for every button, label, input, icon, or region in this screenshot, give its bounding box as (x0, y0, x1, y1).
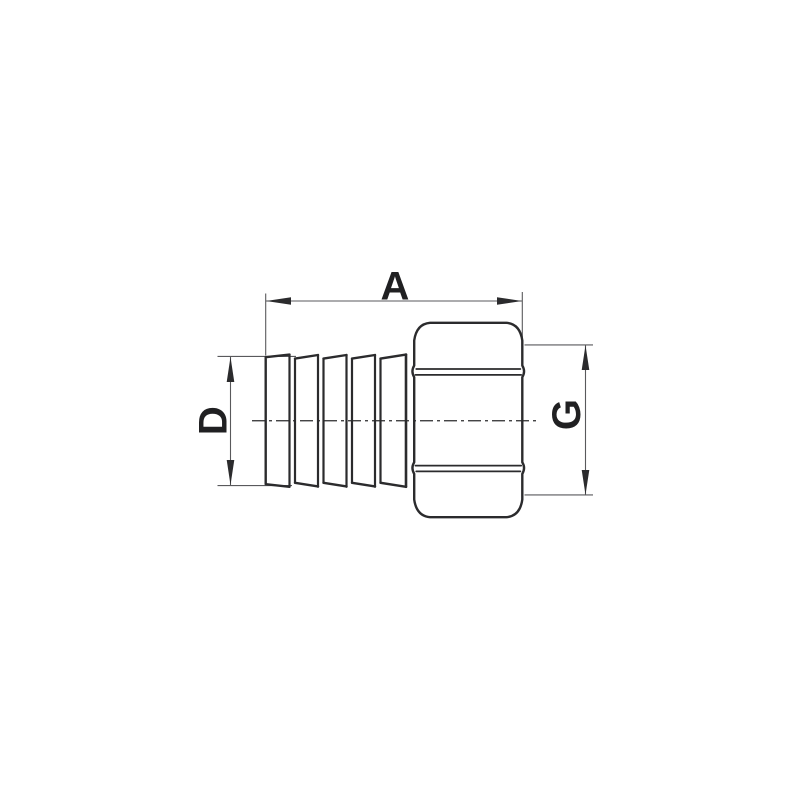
technical-drawing-canvas: A D G (0, 0, 800, 800)
dimension-a-arrow-left (266, 297, 291, 305)
dimension-g: G (525, 345, 594, 495)
dimension-d-arrow-top (227, 357, 235, 382)
hex-lower-facet-lines (415, 466, 521, 472)
hex-nut-section (412, 323, 524, 517)
dimension-d-label: D (192, 406, 236, 435)
dimension-g-arrow-top (582, 345, 590, 370)
dimension-a-arrow-right (497, 297, 522, 305)
hex-body-outline (412, 323, 524, 517)
dimension-a-label: A (381, 265, 410, 309)
dimension-d-arrow-bottom (227, 460, 235, 485)
dimension-a: A (266, 265, 523, 356)
hex-upper-facet-lines (415, 369, 521, 375)
drawing-page: A D G (0, 0, 800, 800)
dimension-g-arrow-bottom (582, 470, 590, 495)
dimension-g-label: G (545, 399, 589, 430)
